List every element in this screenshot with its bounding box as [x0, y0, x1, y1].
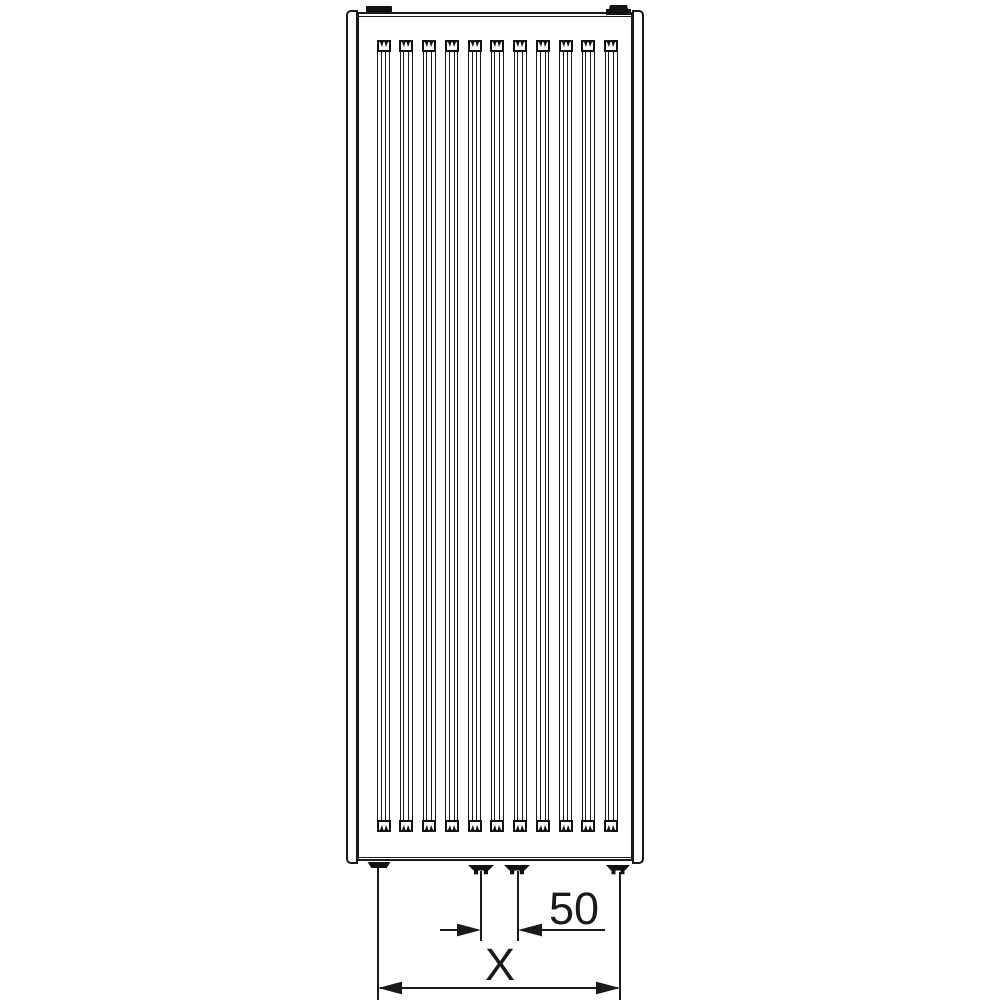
channel-groove-lines — [582, 50, 595, 822]
radiator-channel — [513, 39, 527, 833]
channel-bottom-cap — [536, 821, 550, 833]
blanking-plug-icon — [366, 6, 392, 12]
channel-groove-lines — [559, 50, 572, 822]
channel-bottom-cap — [445, 821, 459, 833]
channel-bottom-cap — [468, 821, 482, 833]
channel-bottom-cap — [513, 821, 527, 833]
channel-layer — [0, 0, 1000, 1000]
channel-bottom-cap — [377, 821, 391, 833]
channel-groove-lines — [605, 50, 618, 822]
channel-groove-lines — [400, 50, 413, 822]
channel-bottom-cap — [581, 821, 595, 833]
radiator-channel — [422, 39, 436, 833]
radiator-channel — [536, 39, 550, 833]
air-vent-cap-icon — [606, 2, 631, 12]
radiator-channel — [559, 39, 573, 833]
radiator-channel — [490, 39, 504, 833]
channel-groove-lines — [536, 50, 549, 822]
dimension-label-x: X — [485, 942, 515, 987]
channel-groove-lines — [491, 50, 504, 822]
channel-groove-lines — [514, 50, 527, 822]
channel-bottom-cap — [422, 821, 436, 833]
radiator-channel — [604, 39, 618, 833]
radiator-channel — [377, 39, 391, 833]
channel-bottom-cap — [399, 821, 413, 833]
radiator-channel — [445, 39, 459, 833]
channel-groove-lines — [468, 50, 481, 822]
radiator-channel — [399, 39, 413, 833]
dimension-label-50: 50 — [549, 886, 599, 931]
channel-bottom-cap — [490, 821, 504, 833]
radiator-channel — [581, 39, 595, 833]
radiator-channel — [468, 39, 482, 833]
radiator-technical-drawing: 50 X — [0, 0, 1000, 1000]
channel-groove-lines — [423, 50, 436, 822]
channel-groove-lines — [445, 50, 458, 822]
channel-bottom-cap — [604, 821, 618, 833]
channel-bottom-cap — [559, 821, 573, 833]
channel-groove-lines — [377, 50, 390, 822]
